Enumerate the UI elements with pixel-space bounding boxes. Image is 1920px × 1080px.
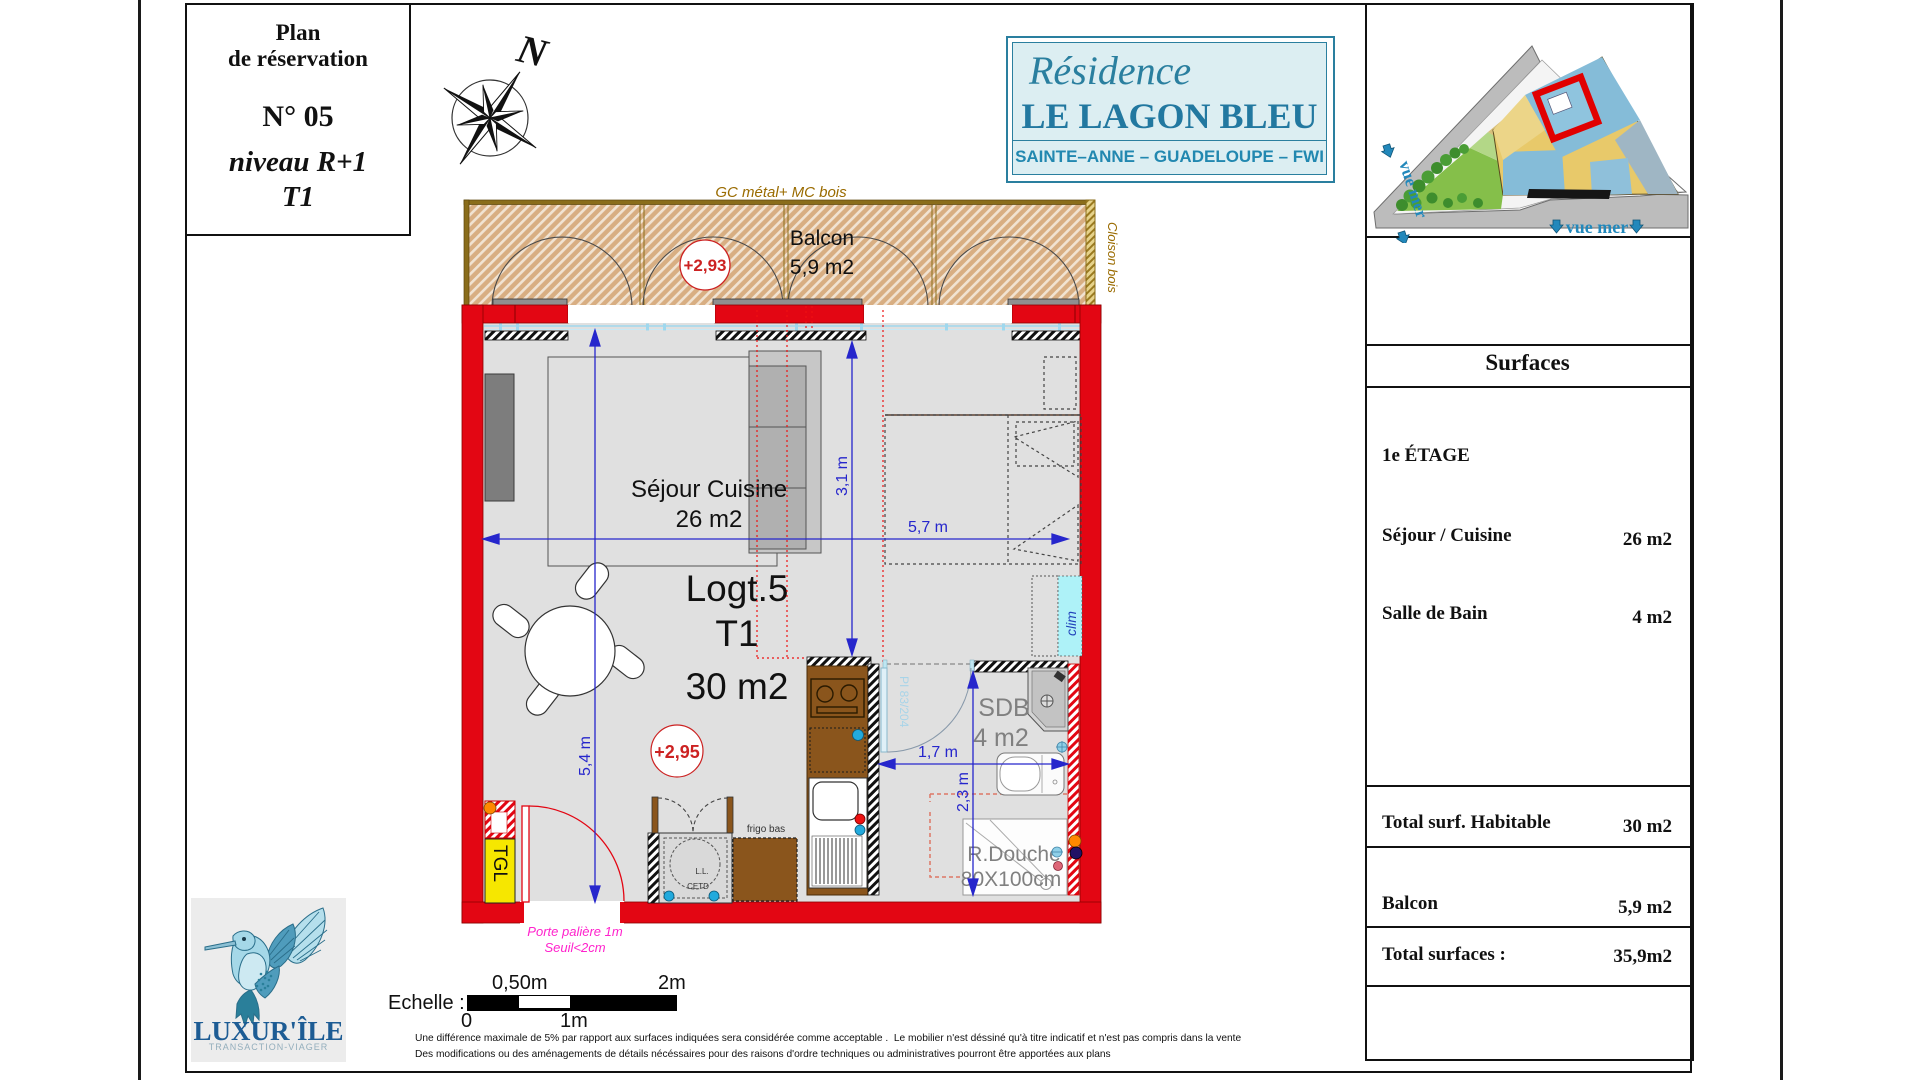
svg-text:Seuil<2cm: Seuil<2cm: [544, 940, 605, 955]
svg-text:+2,93: +2,93: [683, 256, 726, 275]
svg-text:SDB: SDB: [978, 694, 1029, 722]
svg-text:1,7 m: 1,7 m: [918, 744, 958, 761]
svg-text:L.L.: L.L.: [695, 867, 708, 876]
svg-text:30 m2: 30 m2: [686, 666, 789, 707]
svg-text:4 m2: 4 m2: [973, 724, 1029, 752]
svg-text:frigo bas: frigo bas: [747, 824, 785, 835]
svg-text:Porte palière 1m: Porte palière 1m: [527, 924, 623, 939]
svg-text:Cloison bois: Cloison bois: [1105, 222, 1120, 293]
svg-text:5,7 m: 5,7 m: [908, 519, 948, 536]
svg-text:Séjour Cuisine: Séjour Cuisine: [631, 476, 787, 503]
svg-text:Balcon: Balcon: [790, 227, 854, 250]
svg-text:GC métal+ MC bois: GC métal+ MC bois: [715, 184, 847, 201]
svg-text:26 m2: 26 m2: [676, 506, 743, 533]
svg-text:3,1 m: 3,1 m: [834, 456, 851, 496]
svg-text:R.Douche: R.Douche: [967, 843, 1060, 866]
svg-text:PI 83/204: PI 83/204: [897, 676, 911, 728]
svg-text:CETD: CETD: [687, 882, 709, 891]
svg-text:T1: T1: [715, 613, 758, 654]
svg-text:2,3 m: 2,3 m: [955, 772, 972, 812]
svg-text:TGL: TGL: [489, 845, 510, 882]
svg-text:Logt.5: Logt.5: [686, 568, 789, 609]
svg-text:clim: clim: [1063, 611, 1079, 636]
svg-text:5,4 m: 5,4 m: [577, 736, 594, 776]
svg-text:5,9 m2: 5,9 m2: [790, 256, 854, 279]
svg-text:+2,95: +2,95: [654, 742, 700, 762]
